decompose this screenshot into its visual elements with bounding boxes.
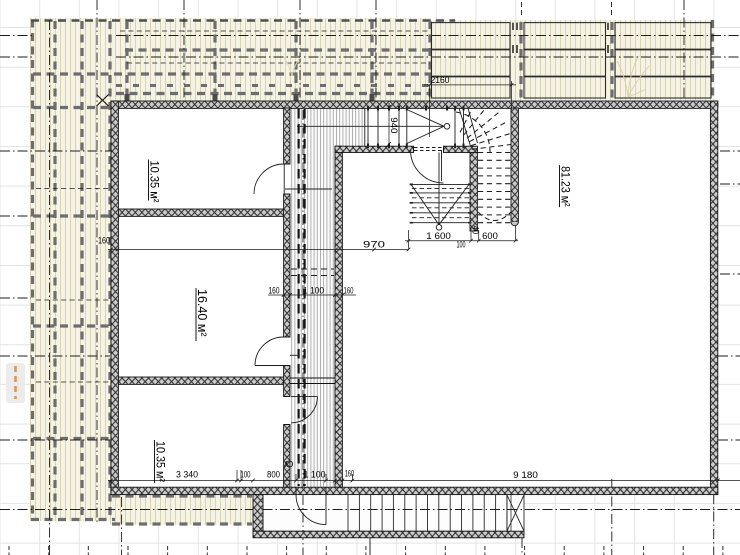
svg-text:10.35 м²: 10.35 м²	[154, 441, 168, 482]
svg-text:40: 40	[471, 226, 481, 235]
svg-text:2160: 2160	[431, 75, 450, 85]
svg-text:600: 600	[482, 231, 498, 241]
svg-text:10.35 м²: 10.35 м²	[148, 161, 162, 203]
svg-text:100: 100	[457, 240, 466, 250]
svg-text:940: 940	[389, 117, 399, 133]
svg-text:1 100: 1 100	[303, 286, 324, 296]
svg-text:81.23 м²: 81.23 м²	[559, 166, 573, 207]
svg-text:800: 800	[267, 470, 280, 480]
svg-text:9 180: 9 180	[513, 470, 538, 480]
svg-text:160: 160	[344, 286, 354, 296]
svg-text:1 100: 1 100	[304, 470, 326, 480]
svg-text:100: 100	[241, 470, 251, 480]
svg-text:160: 160	[269, 286, 280, 296]
svg-text:970: 970	[363, 240, 385, 250]
svg-text:16.40 м²: 16.40 м²	[195, 289, 209, 337]
svg-text:160: 160	[98, 236, 110, 246]
svg-text:160: 160	[345, 469, 354, 479]
svg-text:1 600: 1 600	[426, 231, 451, 241]
svg-text:3 340: 3 340	[176, 470, 198, 480]
